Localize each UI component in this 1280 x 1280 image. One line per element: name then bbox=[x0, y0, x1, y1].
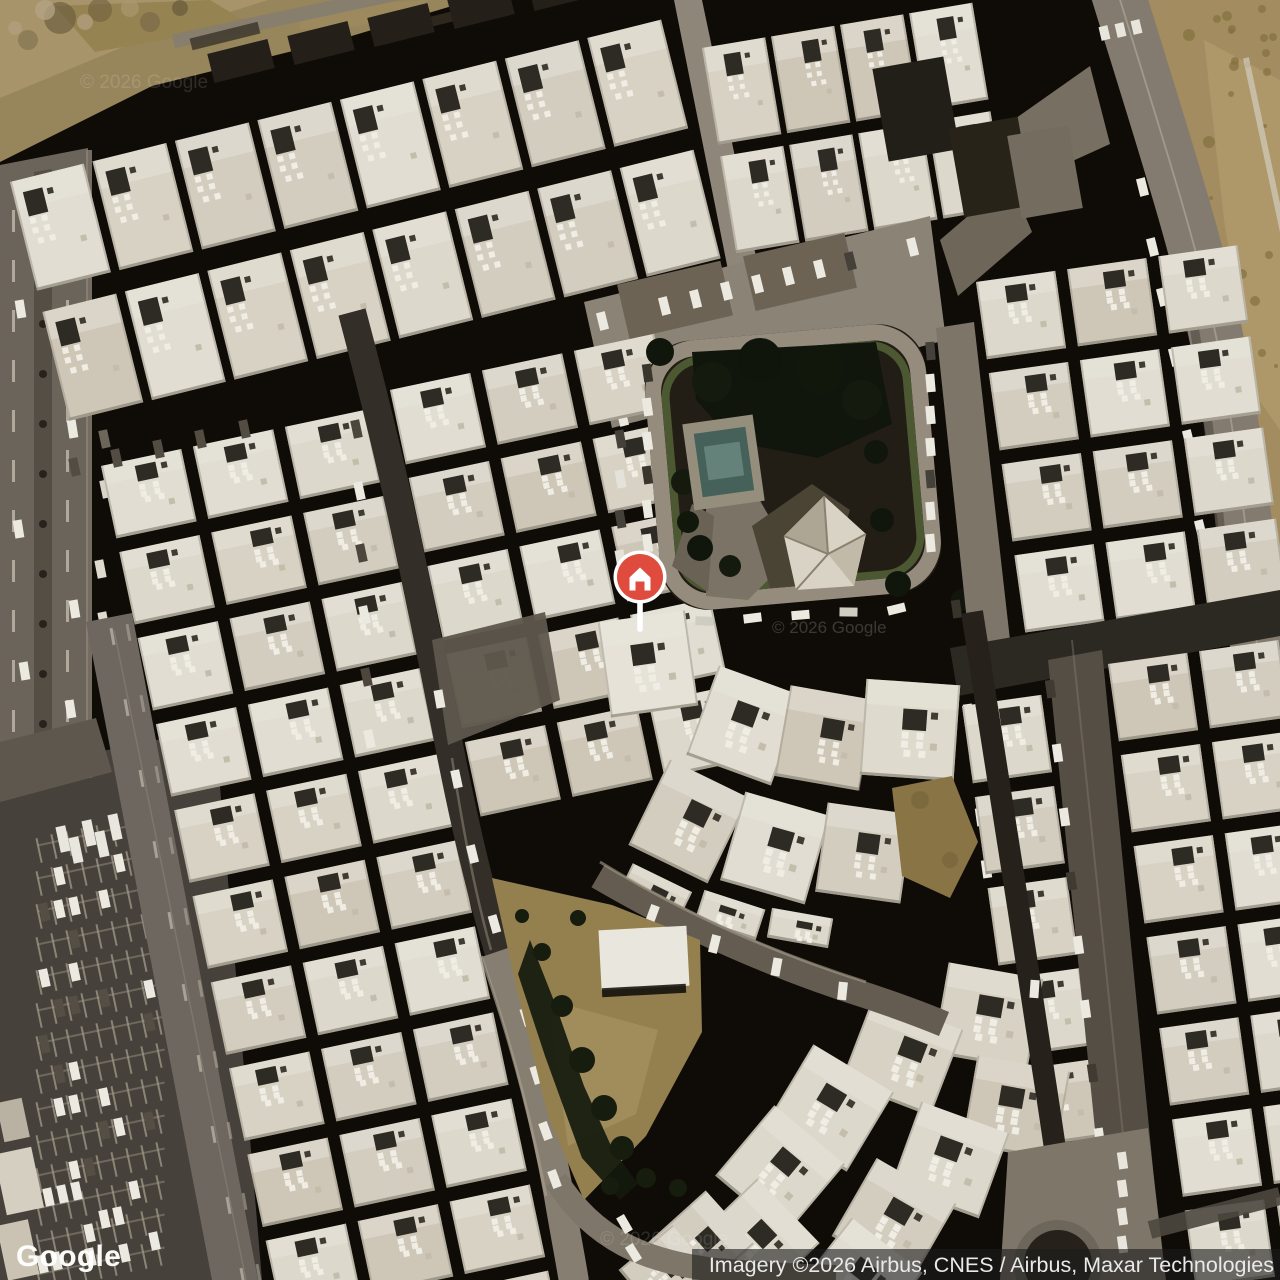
svg-text:© 2026 Google: © 2026 Google bbox=[772, 618, 887, 637]
svg-text:Imagery ©2026 Airbus, CNES / A: Imagery ©2026 Airbus, CNES / Airbus, Max… bbox=[709, 1253, 1274, 1277]
svg-text:Google: Google bbox=[16, 1240, 121, 1273]
svg-text:© 2026 Google: © 2026 Google bbox=[80, 72, 208, 93]
svg-text:© 2026 Google: © 2026 Google bbox=[600, 1229, 728, 1250]
